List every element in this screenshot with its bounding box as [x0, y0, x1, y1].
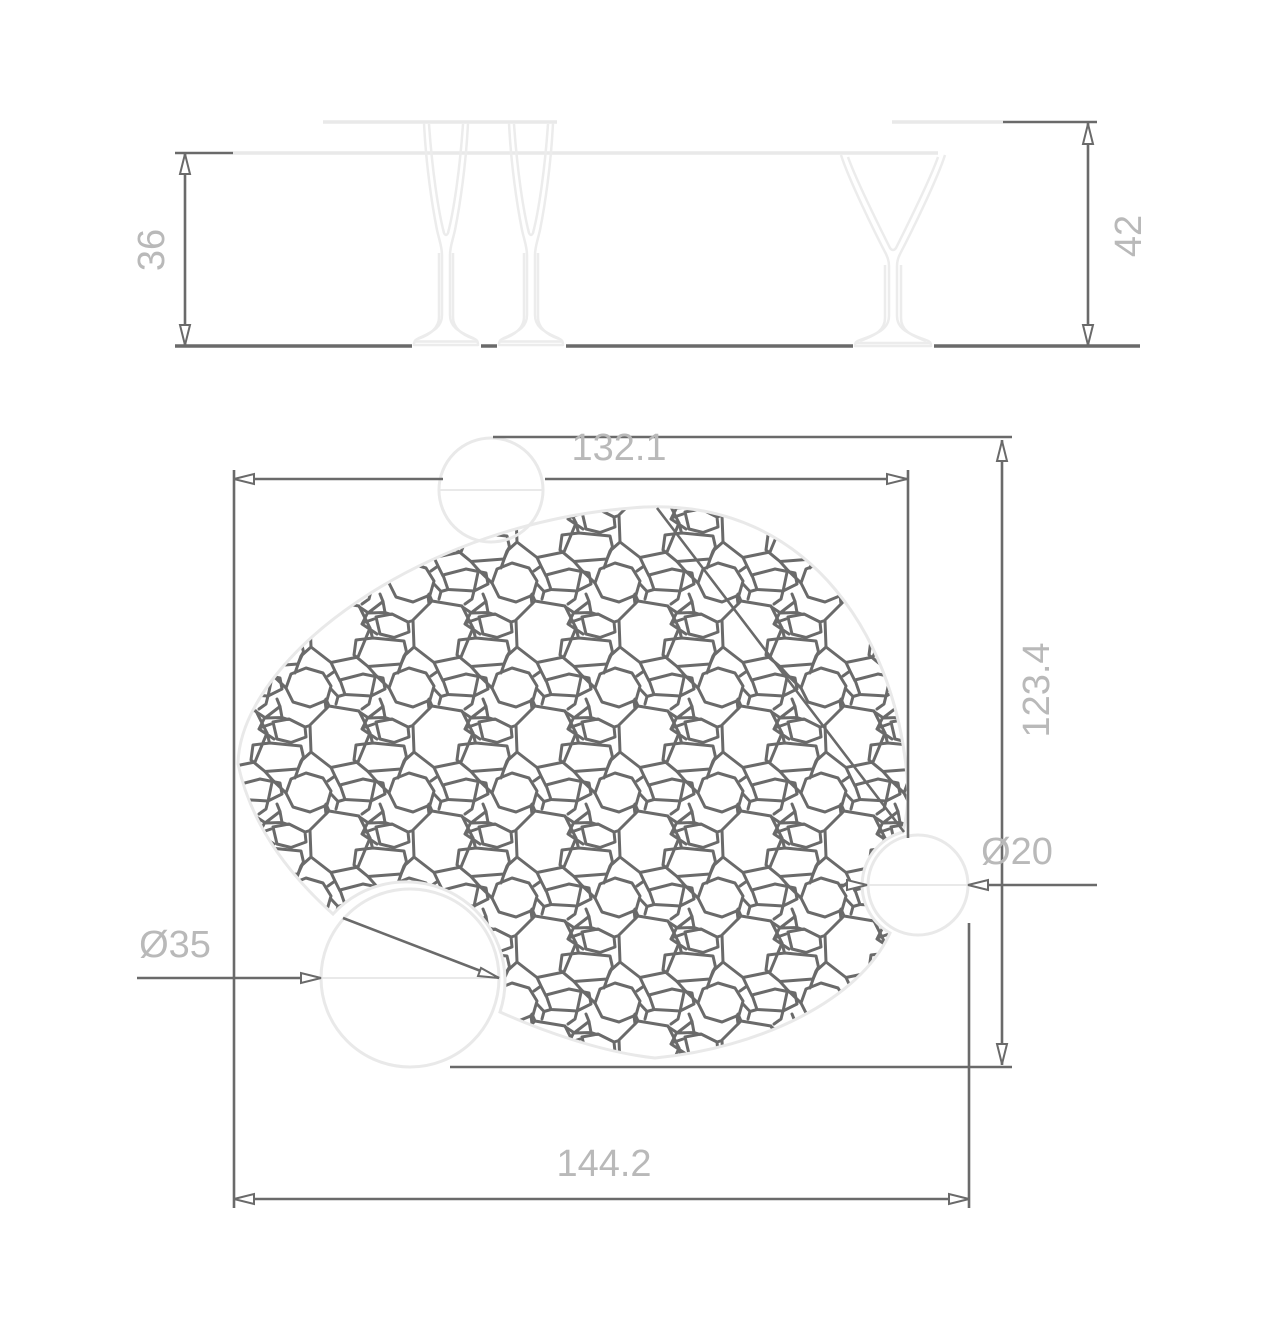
perforated-pattern: [225, 495, 925, 1075]
arrow-right-icon: [478, 968, 499, 978]
dimension-132-1: 132.1: [234, 427, 907, 484]
dim-label-dia-35: Ø35: [139, 924, 211, 966]
dimension-123-4: 123.4: [997, 440, 1058, 1065]
dim-label-144-2: 144.2: [556, 1143, 651, 1185]
dimension-42: 42: [1003, 122, 1150, 346]
arrow-down-icon: [997, 1044, 1007, 1064]
arrow-up-icon: [180, 154, 190, 174]
dimension-36: 36: [131, 153, 233, 346]
arrow-right-icon: [847, 880, 867, 890]
champagne-flute-1: [414, 123, 478, 345]
arrow-right-icon: [887, 474, 907, 484]
arrow-left-icon: [234, 474, 254, 484]
arrow-left-icon: [234, 1194, 254, 1204]
arrow-down-icon: [180, 325, 190, 345]
technical-drawing-canvas: 36 42: [0, 0, 1261, 1336]
arrow-right-icon: [949, 1194, 969, 1204]
dim-label-36: 36: [131, 229, 173, 271]
dim-label-132-1: 132.1: [571, 427, 666, 469]
dim-label-42: 42: [1108, 215, 1150, 257]
cad-drawing: 36 42: [0, 0, 1261, 1336]
martini-glass: [841, 155, 945, 346]
arrow-up-icon: [1083, 124, 1093, 144]
arrow-right-icon: [301, 973, 321, 983]
arrow-down-icon: [1083, 325, 1093, 345]
front-view: 36 42: [131, 122, 1150, 346]
arrow-up-icon: [997, 441, 1007, 461]
dim-label-dia-20: Ø20: [981, 831, 1053, 873]
table-surface-lines: [233, 122, 1003, 153]
dim-label-123-4: 123.4: [1016, 642, 1058, 737]
arrow-left-icon: [968, 880, 988, 890]
plan-view: 132.1 123.4 144.2 Ø35: [137, 427, 1097, 1208]
dimension-144-2: 144.2: [234, 1143, 969, 1204]
champagne-flute-2: [499, 123, 563, 345]
dimension-dia-35: Ø35: [137, 918, 499, 983]
